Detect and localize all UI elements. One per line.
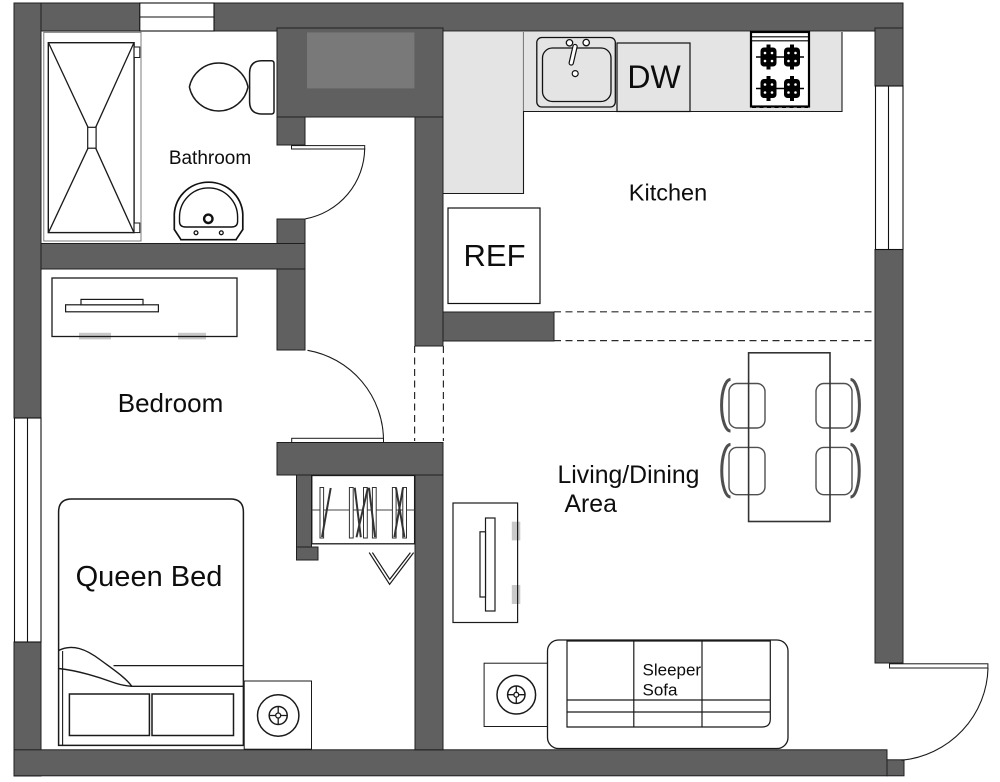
svg-text:DW: DW — [627, 59, 681, 95]
svg-text:Bedroom: Bedroom — [118, 388, 224, 418]
svg-text:Living/Dining: Living/Dining — [558, 462, 700, 489]
svg-text:Bathroom: Bathroom — [169, 148, 251, 169]
svg-text:Sleeper: Sleeper — [643, 661, 702, 680]
svg-text:Queen Bed: Queen Bed — [76, 561, 223, 593]
svg-text:Kitchen: Kitchen — [629, 180, 707, 206]
svg-text:Area: Area — [565, 491, 618, 518]
svg-text:Sofa: Sofa — [643, 681, 679, 700]
svg-text:REF: REF — [464, 238, 526, 273]
